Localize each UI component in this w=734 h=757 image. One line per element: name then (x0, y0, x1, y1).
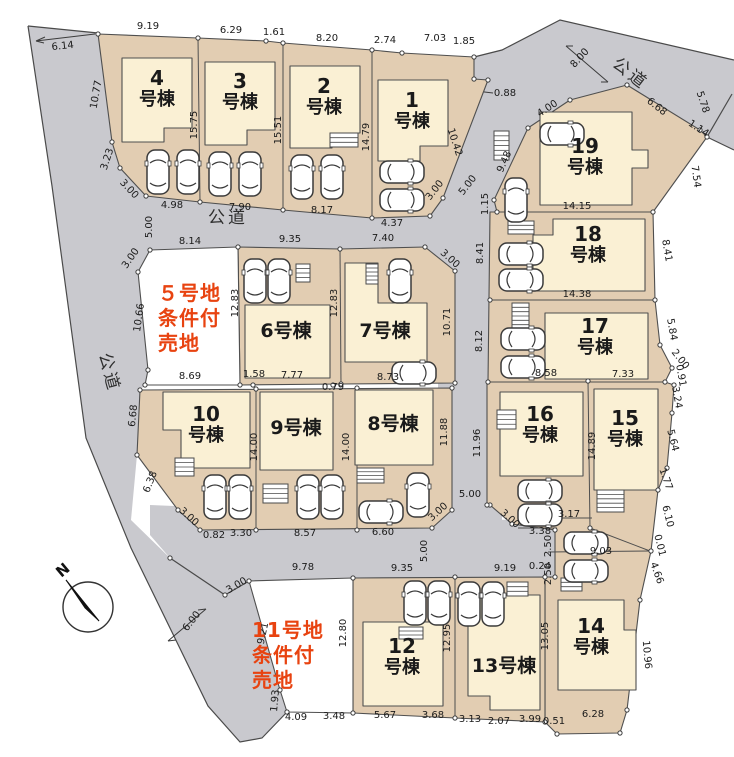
parking-car-icon (564, 558, 608, 584)
dimension-label: 7.33 (612, 369, 634, 380)
parking-car-icon (237, 152, 263, 196)
building-label: 16号棟 (522, 402, 559, 446)
stairs-hatch (497, 410, 516, 429)
boundary-dot (96, 32, 100, 36)
boundary-dot (281, 41, 285, 45)
boundary-dot (400, 51, 404, 55)
compass: N (52, 559, 113, 632)
dimension-label: 14.38 (563, 289, 592, 300)
dimension-label: 4.37 (381, 218, 403, 229)
boundary-dot (453, 575, 457, 579)
parking-car-icon (295, 475, 321, 519)
dimension-label: 7.03 (424, 33, 446, 44)
boundary-dot (656, 488, 660, 492)
boundary-dot (355, 386, 359, 390)
dimension-label: 5.00 (419, 540, 430, 562)
boundary-dot (495, 210, 499, 214)
dimension-label: 14.00 (249, 433, 260, 462)
stairs-hatch (263, 484, 288, 503)
building-label: 17号棟 (577, 314, 614, 358)
boundary-dot (472, 77, 476, 81)
parking-car-icon (480, 582, 506, 626)
boundary-dot (223, 593, 227, 597)
dimension-label: 3.68 (422, 710, 444, 721)
dimension-label: 13.05 (540, 622, 551, 651)
building-label: 12号棟 (384, 634, 421, 678)
boundary-dot (450, 386, 454, 390)
dimension-label: 0.01 (651, 533, 667, 557)
parking-car-icon (456, 582, 482, 626)
dimension-label: 11.88 (439, 418, 450, 447)
boundary-dot (649, 549, 653, 553)
parking-car-icon (503, 178, 529, 222)
boundary-dot (638, 598, 642, 602)
dimension-label: 6.29 (220, 25, 242, 36)
building-label: 14号棟 (573, 614, 610, 658)
dimension-label: 8.69 (179, 371, 201, 382)
boundary-dot (453, 381, 457, 385)
stairs-hatch (366, 264, 378, 284)
stairs-hatch (512, 303, 529, 329)
dimension-label: 2.07 (488, 716, 510, 727)
dimension-label: 8.73 (377, 372, 399, 383)
boundary-dot (146, 368, 150, 372)
parking-car-icon (518, 478, 562, 504)
stairs-hatch (597, 490, 624, 512)
boundary-dot (198, 528, 202, 532)
dimension-label: 9.35 (391, 563, 413, 574)
dimension-label: 6.68 (127, 404, 140, 427)
boundary-dot (485, 503, 489, 507)
dimension-label: 0.88 (494, 88, 516, 99)
parking-car-icon (380, 159, 424, 185)
parking-car-icon (405, 473, 431, 517)
dimension-label: 1.61 (263, 27, 285, 38)
boundary-dot (492, 198, 496, 202)
boundary-dot (281, 208, 285, 212)
boundary-dot (198, 200, 202, 204)
boundary-dot (254, 387, 258, 391)
building-label: 13号棟 (472, 654, 537, 677)
dimension-label: 0.79 (322, 382, 344, 393)
building-label: 9号棟 (270, 416, 322, 439)
parking-car-icon (145, 150, 171, 194)
boundary-dot (138, 388, 142, 392)
parking-car-icon (402, 581, 428, 625)
parking-car-icon (319, 155, 345, 199)
dimension-label: 14.89 (587, 432, 598, 461)
dimension-label: 9.03 (590, 546, 612, 557)
parking-car-icon (380, 187, 424, 213)
boundary-dot (488, 298, 492, 302)
parking-car-icon (359, 499, 403, 525)
boundary-dot (351, 576, 355, 580)
dimension-label: 0.82 (203, 530, 225, 541)
boundary-dot (568, 98, 572, 102)
boundary-dot (553, 528, 557, 532)
dimension-label: 8.57 (294, 528, 316, 539)
stairs-hatch (357, 468, 384, 483)
stairs-hatch (508, 221, 534, 234)
site-plan: 9.196.291.618.202.747.031.856.1410.773.2… (0, 0, 734, 757)
dimension-label: 5.84 (664, 318, 679, 342)
parking-car-icon (499, 241, 543, 267)
boundary-dot (428, 214, 432, 218)
boundary-dot (251, 383, 255, 387)
boundary-dot (618, 731, 622, 735)
dimension-label: 1.15 (480, 193, 491, 215)
road-name-label: 公道 (208, 208, 248, 228)
boundary-dot (526, 126, 530, 130)
dimension-label: 0.51 (543, 716, 565, 727)
boundary-dot (658, 343, 662, 347)
dimension-label: 12.80 (338, 619, 349, 648)
dimension-label: 8.14 (179, 236, 201, 247)
dimension-label: 8.20 (316, 33, 338, 44)
stairs-hatch (296, 264, 310, 282)
boundary-dot (351, 711, 355, 715)
dimension-label: 14.00 (341, 433, 352, 462)
boundary-dot (486, 78, 490, 82)
parking-car-icon (227, 475, 253, 519)
dimension-label: 5.67 (374, 710, 396, 721)
dimension-label: 15.75 (189, 111, 200, 140)
parking-car-icon (266, 259, 292, 303)
boundary-dot (651, 210, 655, 214)
dimension-label: 15.51 (273, 116, 284, 145)
dimension-label: 0.24 (529, 561, 551, 572)
dimension-label: 14.15 (563, 201, 592, 212)
dimension-label: 4.09 (285, 712, 307, 723)
boundary-dot (370, 216, 374, 220)
dimension-label: 9.19 (137, 21, 159, 32)
building-label: 7号棟 (359, 319, 411, 342)
stairs-hatch (330, 133, 358, 147)
dimension-label: 2.74 (374, 35, 396, 46)
parking-car-icon (202, 475, 228, 519)
dimension-label: 1.85 (453, 36, 475, 47)
boundary-dot (441, 196, 445, 200)
boundary-dot (254, 528, 258, 532)
boundary-dot (168, 556, 172, 560)
dimension-label: 1.93 (269, 689, 282, 712)
boundary-dot (148, 248, 152, 252)
parking-car-icon (387, 259, 413, 303)
dimension-label: 3.99 (519, 714, 541, 725)
dimension-label: 11.96 (472, 429, 483, 458)
parking-car-icon (518, 502, 562, 528)
boundary-dot (450, 508, 454, 512)
parking-car-icon (499, 267, 543, 293)
building-label: 19号棟 (567, 134, 604, 178)
dimension-label: 8.41 (659, 239, 674, 263)
boundary-dot (144, 194, 148, 198)
parking-car-icon (207, 152, 233, 196)
dimension-label: 14.79 (361, 123, 372, 152)
boundary-dot (430, 526, 434, 530)
dimension-label: 4.66 (647, 561, 665, 586)
parking-car-icon (175, 150, 201, 194)
dimension-label: 8.17 (311, 205, 333, 216)
parking-car-icon (319, 475, 345, 519)
dimension-label: 3.30 (230, 528, 252, 539)
boundary-dot (453, 716, 457, 720)
boundary-dot (663, 380, 667, 384)
dimension-label: 3.13 (459, 714, 481, 725)
dimension-label: 9.78 (292, 562, 314, 573)
dimension-label: 7.40 (372, 233, 394, 244)
stairs-hatch (175, 458, 194, 476)
dimension-label: 8.12 (474, 330, 485, 352)
building-label: 15号棟 (607, 406, 644, 450)
parking-car-icon (426, 581, 452, 625)
parking-car-icon (289, 155, 315, 199)
boundary-dot (588, 526, 592, 530)
parking-car-icon (501, 326, 545, 352)
dimension-label: 4.98 (161, 200, 183, 211)
dimension-label: 10.71 (442, 308, 453, 337)
boundary-dot (486, 380, 490, 384)
boundary-dot (238, 383, 242, 387)
dimension-label: 7.77 (281, 370, 303, 381)
dimension-label: 6.60 (372, 527, 394, 538)
stairs-hatch (507, 582, 528, 596)
boundary-dot (625, 708, 629, 712)
dimension-label: 1.58 (243, 369, 265, 380)
dimension-label: 6.14 (51, 40, 74, 53)
dimension-label: 9.19 (494, 563, 516, 574)
parking-car-icon (242, 259, 268, 303)
building-label: 18号棟 (570, 222, 607, 266)
building-label: 8号棟 (367, 412, 419, 435)
boundary-dot (423, 245, 427, 249)
dimension-label: 12.83 (329, 289, 340, 318)
boundary-dot (555, 732, 559, 736)
dimension-label: 8.58 (535, 368, 557, 379)
dimension-label: 3.48 (323, 711, 345, 722)
boundary-dot (110, 140, 114, 144)
compass-north-label: N (52, 559, 73, 581)
dimension-label: 5.00 (144, 216, 155, 238)
boundary-dot (338, 247, 342, 251)
dimension-label: 8.41 (475, 242, 486, 264)
boundary-dot (653, 298, 657, 302)
dimension-label: 6.28 (582, 709, 604, 720)
dimension-label: 7.54 (688, 165, 702, 189)
dimension-label: 12.95 (442, 624, 453, 653)
dimension-label: 10.96 (640, 640, 653, 669)
boundary-dot (135, 453, 139, 457)
site-plan-map: 9.196.291.618.202.747.031.856.1410.773.2… (0, 0, 734, 757)
boundary-dot (370, 48, 374, 52)
boundary-dot (236, 245, 240, 249)
dimension-label: 12.83 (230, 289, 241, 318)
boundary-dot (264, 39, 268, 43)
dimension-label: 3.17 (558, 509, 580, 520)
building-label: 6号棟 (260, 319, 312, 342)
boundary-dot (136, 270, 140, 274)
dimension-label: 9.35 (279, 234, 301, 245)
boundary-dot (586, 379, 590, 383)
boundary-dot (118, 166, 122, 170)
boundary-dot (196, 36, 200, 40)
boundary-dot (355, 528, 359, 532)
dimension-label: 6.10 (659, 504, 675, 528)
dimension-label: 2.50 (543, 535, 554, 557)
boundary-dot (670, 411, 674, 415)
boundary-dot (472, 55, 476, 59)
dimension-label: 5.00 (459, 489, 481, 500)
building-label: 10号棟 (188, 402, 225, 446)
boundary-dot (143, 383, 147, 387)
